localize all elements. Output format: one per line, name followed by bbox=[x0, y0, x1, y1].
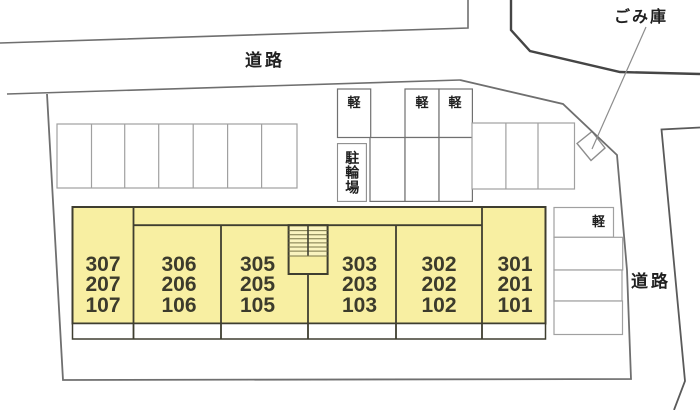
svg-text:107: 107 bbox=[85, 294, 120, 317]
svg-text:軽: 軽 bbox=[415, 95, 429, 110]
svg-text:105: 105 bbox=[240, 294, 275, 317]
svg-text:道路: 道路 bbox=[631, 271, 671, 291]
svg-text:道路: 道路 bbox=[245, 50, 285, 70]
svg-text:103: 103 bbox=[342, 294, 377, 317]
svg-text:206: 206 bbox=[161, 273, 196, 296]
svg-text:ごみ庫: ごみ庫 bbox=[614, 7, 668, 26]
svg-text:101: 101 bbox=[497, 294, 532, 317]
svg-text:軽: 軽 bbox=[347, 95, 361, 110]
svg-text:場: 場 bbox=[345, 180, 359, 196]
svg-text:軽: 軽 bbox=[448, 95, 462, 110]
svg-text:輪: 輪 bbox=[345, 165, 360, 181]
svg-text:201: 201 bbox=[497, 273, 532, 296]
svg-text:203: 203 bbox=[342, 273, 377, 296]
svg-text:207: 207 bbox=[85, 273, 120, 296]
svg-text:軽: 軽 bbox=[592, 214, 606, 229]
svg-text:202: 202 bbox=[421, 273, 456, 296]
svg-text:106: 106 bbox=[161, 294, 196, 317]
svg-text:205: 205 bbox=[240, 273, 275, 296]
svg-text:102: 102 bbox=[421, 294, 456, 317]
